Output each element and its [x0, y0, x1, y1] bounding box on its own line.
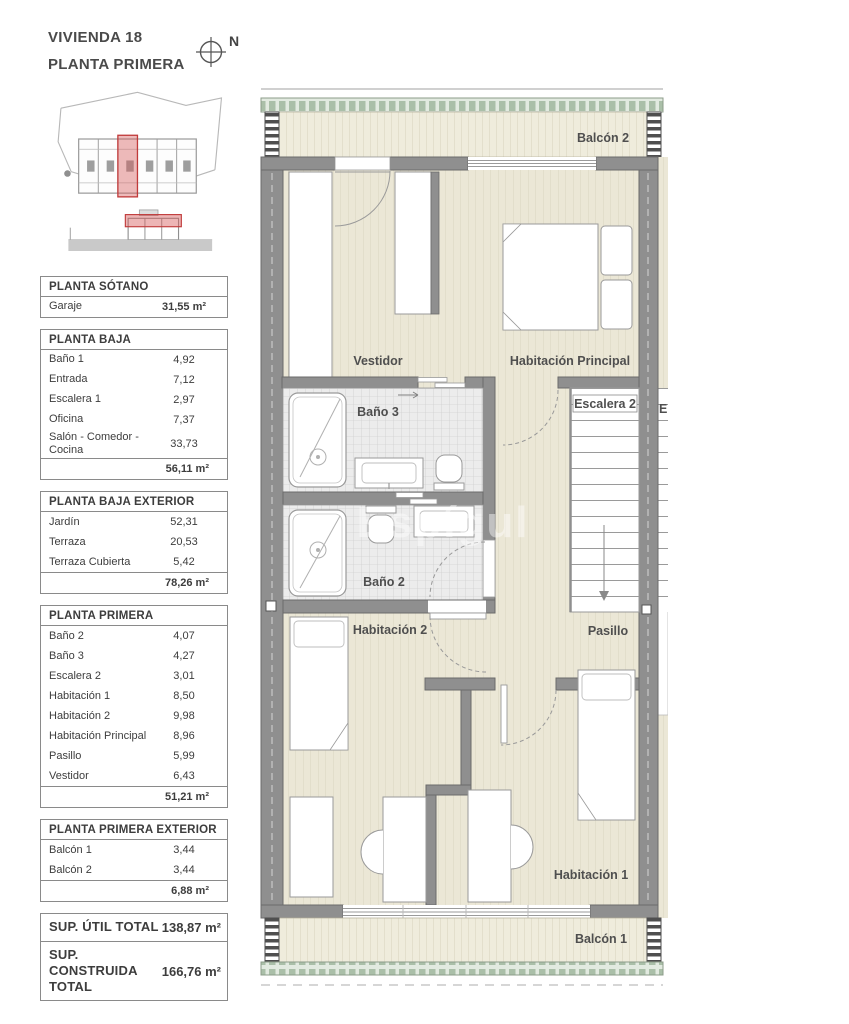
room-name: Entrada [49, 372, 155, 387]
table-body: Garaje31,55 m² [41, 297, 227, 317]
room-area: 8,96 [155, 730, 213, 742]
room-area: 3,44 [155, 844, 213, 856]
bano-2-label: Baño 2 [363, 575, 405, 589]
summary-label: SUP. ÚTIL TOTAL [49, 919, 161, 935]
floor-plan-drawing: Balcón 2 E [258, 85, 668, 1015]
area-row: Vestidor6,43 [41, 766, 227, 786]
room-area: 33,73 [155, 438, 213, 450]
table-title: PLANTA BAJA EXTERIOR [41, 492, 227, 512]
neighbor-unit-sliver: E [658, 157, 668, 918]
room-name: Balcón 1 [49, 843, 155, 858]
top-wall [261, 157, 658, 170]
neighbor-label-cut: E [659, 402, 667, 416]
table-total: 78,26 m² [41, 572, 227, 593]
room-name: Pasillo [49, 749, 155, 764]
area-row: Pasillo5,99 [41, 746, 227, 766]
room-area: 52,31 [155, 516, 213, 528]
room-name: Jardín [49, 515, 155, 530]
table-body: Baño 14,92Entrada7,12Escalera 12,97Ofici… [41, 350, 227, 458]
area-row: Jardín52,31 [41, 512, 227, 532]
balcony-door-opening [335, 157, 390, 170]
summary-value: 166,76 m² [161, 964, 221, 979]
double-bed [503, 224, 598, 330]
title-block: VIVIENDA 18 PLANTA PRIMERA N [40, 30, 228, 72]
room-area: 31,55 m² [155, 301, 213, 313]
highlighted-unit [118, 135, 138, 197]
summary-row: SUP. CONSTRUIDA TOTAL 166,76 m² [41, 941, 227, 1001]
room-name: Balcón 2 [49, 863, 155, 878]
summary-label: SUP. CONSTRUIDA TOTAL [49, 947, 161, 996]
table-title: PLANTA SÓTANO [41, 277, 227, 297]
room-area: 9,98 [155, 710, 213, 722]
table-total: 56,11 m² [41, 458, 227, 479]
room-name: Baño 3 [49, 649, 155, 664]
area-table-baja-exterior: PLANTA BAJA EXTERIOR Jardín52,31Terraza2… [40, 491, 228, 594]
area-row: Balcón 13,44 [41, 840, 227, 860]
room-area: 5,99 [155, 750, 213, 762]
door-leaf [501, 685, 507, 743]
room-name: Terraza [49, 535, 155, 550]
area-row: Escalera 23,01 [41, 666, 227, 686]
summary-row: SUP. ÚTIL TOTAL 138,87 m² [41, 914, 227, 940]
floor-plan-page: VIVIENDA 18 PLANTA PRIMERA N [0, 0, 849, 1024]
hab2-door-opening [428, 601, 486, 613]
balcony-2: Balcón 2 [261, 98, 663, 157]
room-name: Baño 1 [49, 352, 155, 367]
watermark: Espígul [357, 498, 530, 547]
habitacion-principal-label: Habitación Principal [510, 354, 630, 368]
bano2-door-opening [483, 540, 495, 597]
table-body: Baño 24,07Baño 34,27Escalera 23,01Habita… [41, 626, 227, 786]
room-area: 2,97 [155, 394, 213, 406]
room-name: Escalera 1 [49, 392, 155, 407]
site-section-sketch [68, 210, 212, 251]
balcony-1: Balcón 1 [261, 918, 663, 985]
area-row: Balcón 23,44 [41, 860, 227, 880]
area-row: Habitación Principal8,96 [41, 726, 227, 746]
sidebar: VIVIENDA 18 PLANTA PRIMERA N [40, 30, 228, 1001]
summary-value: 138,87 m² [161, 920, 221, 935]
shower-tray [289, 510, 346, 596]
room-name: Escalera 2 [49, 669, 155, 684]
vanity-sink [355, 458, 423, 489]
area-row: Terraza Cubierta5,42 [41, 552, 227, 572]
pasillo-label: Pasillo [588, 624, 629, 638]
area-row: Habitación 18,50 [41, 686, 227, 706]
bottom-wall [261, 905, 658, 918]
area-table-primera-exterior: PLANTA PRIMERA EXTERIOR Balcón 13,44Balc… [40, 819, 228, 902]
room-name: Baño 2 [49, 629, 155, 644]
table-body: Jardín52,31Terraza20,53Terraza Cubierta5… [41, 512, 227, 572]
bano-3-label: Baño 3 [357, 405, 399, 419]
bedroom-window [468, 157, 596, 170]
site-plan-thumbnail [46, 84, 228, 264]
table-title: PLANTA BAJA [41, 330, 227, 350]
area-row: Baño 24,07 [41, 626, 227, 646]
room-name: Vestidor [49, 769, 155, 784]
area-row: Entrada7,12 [41, 370, 227, 390]
wardrobe [290, 797, 333, 897]
table-total: 6,88 m² [41, 880, 227, 901]
room-area: 7,12 [155, 374, 213, 386]
summary-table: SUP. ÚTIL TOTAL 138,87 m² SUP. CONSTRUID… [40, 913, 228, 1001]
north-arrow-icon: N [192, 32, 244, 72]
area-row: Baño 34,27 [41, 646, 227, 666]
area-row: Baño 14,92 [41, 350, 227, 370]
table-title: PLANTA PRIMERA EXTERIOR [41, 820, 227, 840]
door-leaf [430, 613, 486, 619]
area-row: Habitación 29,98 [41, 706, 227, 726]
north-label: N [229, 33, 239, 49]
habitacion-2-label: Habitación 2 [353, 623, 427, 637]
room-name: Habitación Principal [49, 729, 155, 744]
area-row: Terraza20,53 [41, 532, 227, 552]
room-area: 4,07 [155, 630, 213, 642]
area-table-primera: PLANTA PRIMERA Baño 24,07Baño 34,27Escal… [40, 605, 228, 808]
room-area: 4,92 [155, 354, 213, 366]
room-name: Salón - Comedor - Cocina [49, 430, 155, 458]
room-area: 6,43 [155, 770, 213, 782]
escalera-2: Escalera 2 [570, 388, 639, 612]
area-row: Escalera 12,97 [41, 390, 227, 410]
area-row: Garaje31,55 m² [41, 297, 227, 317]
room-area: 5,42 [155, 556, 213, 568]
shower-tray [289, 393, 346, 487]
room-name: Habitación 1 [49, 689, 155, 704]
table-body: Balcón 13,44Balcón 23,44 [41, 840, 227, 880]
room-name: Habitación 2 [49, 709, 155, 724]
window-band [343, 905, 590, 918]
room-name: Terraza Cubierta [49, 555, 155, 570]
area-row: Oficina7,37 [41, 410, 227, 430]
area-row: Salón - Comedor - Cocina33,73 [41, 430, 227, 458]
table-title: PLANTA PRIMERA [41, 606, 227, 626]
area-table-sotano: PLANTA SÓTANO Garaje31,55 m² [40, 276, 228, 318]
room-area: 20,53 [155, 536, 213, 548]
escalera-2-label: Escalera 2 [574, 397, 636, 411]
site-marker-dot [64, 170, 71, 177]
table-total: 51,21 m² [41, 786, 227, 807]
section-ground [68, 240, 212, 251]
bano-3: Baño 3 [283, 388, 483, 492]
room-area: 8,50 [155, 690, 213, 702]
room-name: Oficina [49, 412, 155, 427]
room-area: 7,37 [155, 414, 213, 426]
balcony-2-label: Balcón 2 [577, 131, 629, 145]
room-name: Garaje [49, 299, 155, 314]
room-area: 3,44 [155, 864, 213, 876]
vestidor-label: Vestidor [353, 354, 402, 368]
area-table-baja: PLANTA BAJA Baño 14,92Entrada7,12Escaler… [40, 329, 228, 480]
desk [383, 797, 426, 902]
balcony-1-label: Balcón 1 [575, 932, 627, 946]
habitacion-1-label: Habitación 1 [554, 868, 628, 882]
room-area: 4,27 [155, 650, 213, 662]
toilet [434, 455, 464, 490]
desk [468, 790, 511, 902]
room-area: 3,01 [155, 670, 213, 682]
